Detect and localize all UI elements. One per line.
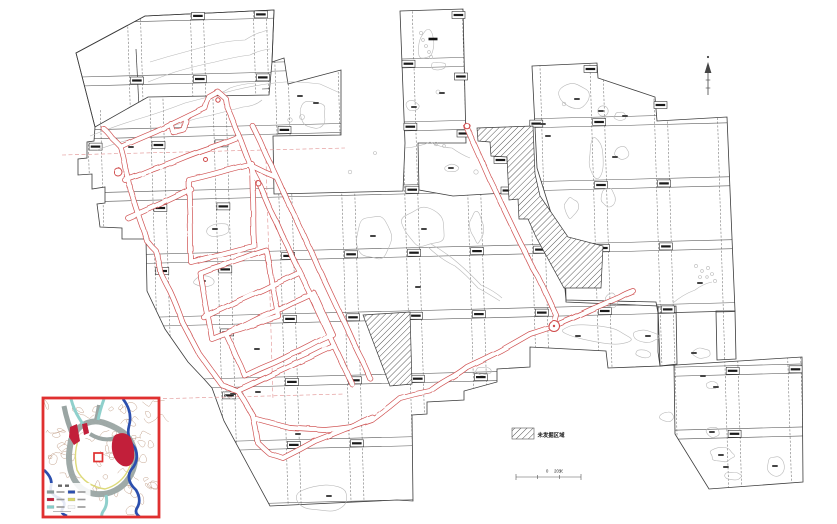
svg-text:未发掘区域: 未发掘区域	[538, 431, 566, 439]
svg-text:0 20米: 0 20米	[546, 468, 564, 475]
